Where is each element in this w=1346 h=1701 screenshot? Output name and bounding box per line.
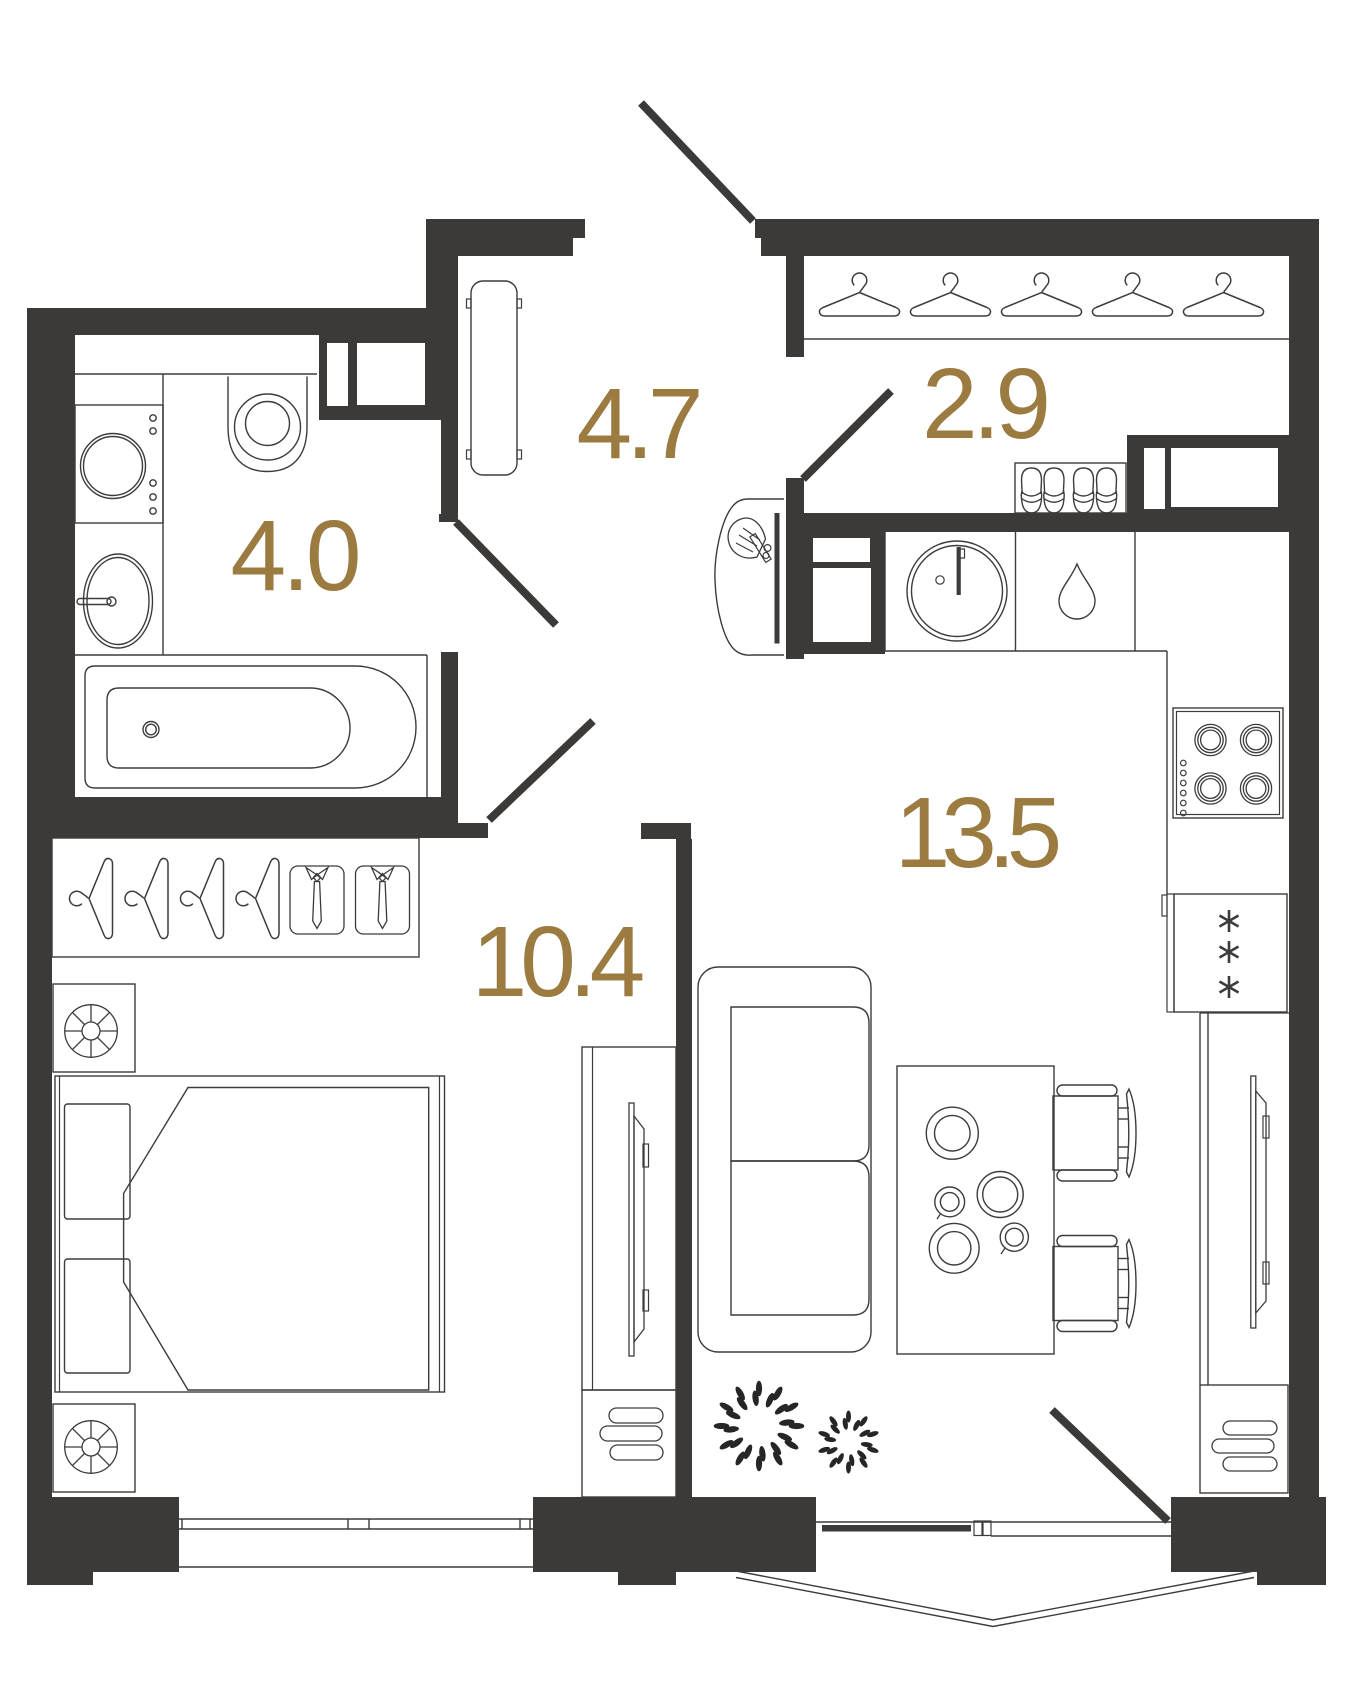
svg-text:10.4: 10.4 — [472, 906, 643, 1018]
svg-text:4.0: 4.0 — [230, 500, 357, 612]
svg-text:13.5: 13.5 — [895, 777, 1059, 889]
svg-text:4.7: 4.7 — [576, 368, 698, 480]
svg-text:2.9: 2.9 — [922, 348, 1046, 460]
